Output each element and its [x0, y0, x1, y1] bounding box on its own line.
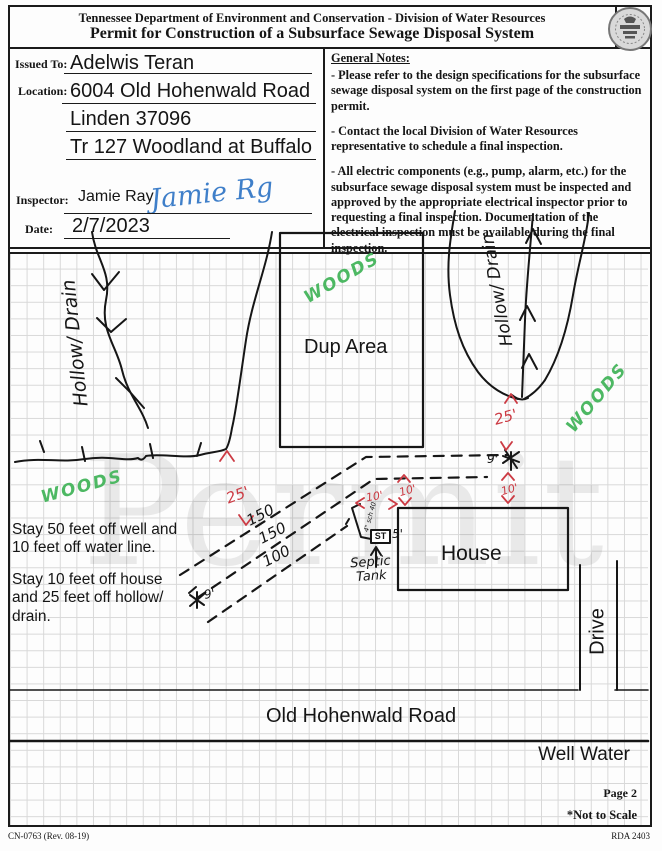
location-underline-2 [66, 130, 316, 132]
house-label: House [441, 542, 502, 566]
general-note-1: - Please refer to the design specificati… [331, 68, 645, 114]
date-value: 2/7/2023 [72, 215, 150, 238]
notes-divider [323, 47, 325, 249]
well-water-label: Well Water [520, 744, 630, 766]
page-title: Permit for Construction of a Subsurface … [10, 25, 614, 43]
header-divider [615, 5, 617, 47]
drive-label: Drive [587, 592, 610, 672]
inspector-line [64, 212, 312, 214]
inspector-name: Jamie Ray [78, 188, 154, 206]
location-line2: Linden 37096 [70, 108, 191, 131]
location-line3: Tr 127 Woodland at Buffalo [70, 136, 312, 159]
rda-number: RDA 2403 [540, 831, 650, 841]
form-number: CN-0763 (Rev. 08-19) [8, 831, 89, 841]
location-line1: 6004 Old Hohenwald Road [70, 80, 310, 103]
location-underline-1 [62, 102, 316, 104]
location-underline-3 [66, 158, 316, 160]
not-to-scale-note: *Not to Scale [520, 808, 637, 823]
general-note-2: - Contact the local Division of Water Re… [331, 124, 645, 154]
date-label: Date: [25, 222, 53, 237]
tank-side-dim: 5' [392, 527, 403, 541]
tree-height-label: 9' [487, 452, 498, 466]
location-label: Location: [18, 84, 67, 99]
issued-to-line [64, 72, 312, 74]
setback-note-1: Stay 50 feet off well and 10 feet off wa… [12, 521, 180, 558]
issued-to-label: Issued To: [15, 57, 67, 72]
inspector-label: Inspector: [16, 193, 69, 208]
setback-note-2: Stay 10 feet off house and 25 feet off h… [12, 571, 170, 626]
septic-tank-label: Septic Tank [345, 554, 397, 586]
page-number: Page 2 [560, 786, 637, 801]
line-spacing-label: 9' [203, 586, 216, 602]
agency-title: Tennessee Department of Environment and … [10, 11, 614, 26]
st-box-label: ST [371, 531, 390, 541]
road-label: Old Hohenwald Road [266, 705, 456, 728]
permit-page: Permit Tennessee Department of Environme… [0, 0, 662, 851]
date-line [64, 237, 230, 239]
dup-area-label: Dup Area [304, 336, 387, 359]
general-notes-heading: General Notes: [331, 51, 645, 66]
